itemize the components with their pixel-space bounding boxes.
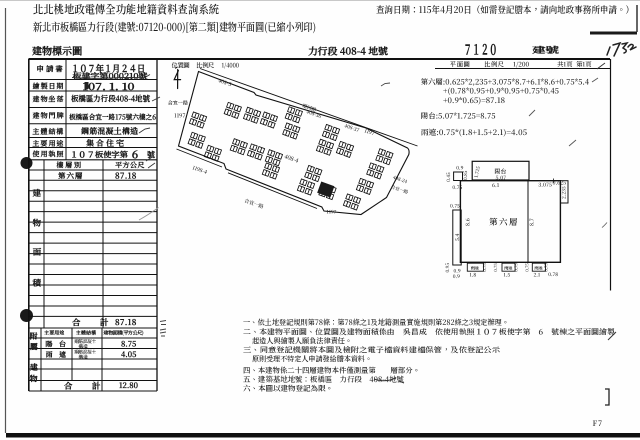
- svg-text:陽台:5.07*1.725=8.75: 陽台:5.07*1.725=8.75: [421, 111, 496, 122]
- svg-text:屬: 屬: [29, 342, 38, 353]
- svg-text:主體結構: 主體結構: [76, 330, 97, 337]
- svg-text:1197: 1197: [174, 112, 185, 120]
- svg-text:8.7: 8.7: [529, 218, 536, 226]
- svg-text:0.95: 0.95: [445, 263, 451, 273]
- svg-text:６: ６: [130, 146, 140, 161]
- svg-text:4.05: 4.05: [121, 349, 137, 360]
- svg-text:位置圖: 位置圖: [172, 60, 191, 69]
- svg-text:北北桃地政電傳全功能地籍資料查詢系統: 北北桃地政電傳全功能地籍資料查詢系統: [33, 2, 219, 18]
- svg-text:8.75: 8.75: [121, 338, 137, 349]
- svg-text:F7: F7: [593, 418, 603, 429]
- svg-text:第六層: 第六層: [57, 170, 84, 181]
- svg-text:台: 台: [59, 340, 66, 350]
- svg-text:0.75: 0.75: [525, 263, 531, 272]
- svg-text:0.45: 0.45: [446, 172, 452, 182]
- svg-text:查詢日期：115年4月20日（如需登記謄本，請向地政事務所申: 查詢日期：115年4月20日（如需登記謄本，請向地政事務所申請。）: [376, 2, 634, 16]
- svg-text:主體結構: 主體結構: [33, 127, 65, 137]
- svg-text:遮: 遮: [59, 350, 67, 360]
- svg-text:5.07: 5.07: [496, 175, 507, 182]
- svg-text:107. 1. 10: 107. 1. 10: [83, 79, 136, 93]
- svg-text:構造: 構造: [78, 353, 89, 360]
- svg-text:0.85: 0.85: [463, 170, 469, 180]
- svg-text:計: 計: [99, 317, 109, 329]
- svg-text:原則受理不特定人申請發給謄本資料。: 原則受理不特定人申請發給謄本資料。: [252, 354, 372, 365]
- svg-text:1197: 1197: [327, 209, 337, 216]
- svg-text:力行段 408-4 地號: 力行段 408-4 地號: [308, 44, 389, 58]
- svg-text:雨: 雨: [46, 350, 54, 360]
- svg-text:六、本圖以建物登記為限。: 六、本圖以建物登記為限。: [243, 383, 333, 394]
- svg-text:建物面積(平方公尺): 建物面積(平方公尺): [103, 330, 144, 337]
- svg-text:主要用途: 主要用途: [33, 139, 65, 149]
- svg-text:積: 積: [32, 277, 42, 289]
- svg-text:建: 建: [29, 362, 39, 373]
- svg-text:新北市板橋區力行段(建號:07120-000)[第二類]建物: 新北市板橋區力行段(建號:07120-000)[第二類]建物平面圖(已縮小列印): [33, 19, 316, 35]
- svg-text:附: 附: [30, 331, 39, 342]
- svg-text:0.75: 0.75: [452, 184, 462, 191]
- svg-text:合宜一路: 合宜一路: [168, 99, 188, 106]
- svg-text:0.75: 0.75: [543, 263, 549, 272]
- svg-text:比例尺: 比例尺: [484, 60, 505, 69]
- svg-text:0.75: 0.75: [482, 263, 488, 272]
- svg-text:平面圖: 平面圖: [449, 60, 471, 69]
- svg-text:第六層: 第六層: [489, 216, 519, 228]
- svg-text:87.18: 87.18: [115, 170, 137, 181]
- svg-text:建號: 建號: [530, 44, 559, 56]
- svg-text:0.625: 0.625: [553, 180, 567, 187]
- svg-text:平方公尺: 平方公尺: [115, 160, 145, 170]
- svg-text:建物坐落: 建物坐落: [33, 95, 65, 105]
- svg-text:87.18: 87.18: [115, 317, 137, 328]
- svg-text:合: 合: [63, 380, 73, 392]
- svg-text:申請書: 申請書: [37, 64, 66, 75]
- svg-text:0.75: 0.75: [493, 263, 499, 272]
- svg-text:建: 建: [32, 187, 42, 199]
- svg-text:計: 計: [91, 380, 101, 392]
- svg-text:2.1: 2.1: [534, 272, 541, 279]
- svg-text:７１２０: ７１２０: [464, 39, 498, 59]
- svg-text:共1頁: 共1頁: [557, 60, 573, 69]
- svg-text:比例尺: 比例尺: [196, 60, 215, 69]
- svg-text:+0.9*0.65)=87.18: +0.9*0.65)=87.18: [443, 95, 505, 106]
- svg-text:建物門牌: 建物門牌: [33, 111, 65, 121]
- svg-text:面: 面: [33, 246, 42, 258]
- svg-text:使用執照: 使用執照: [32, 150, 65, 160]
- svg-text:0.9: 0.9: [453, 273, 460, 280]
- svg-text:雨遮:0.75*(1.8+1.5+2.1)=4.05: 雨遮:0.75*(1.8+1.5+2.1)=4.05: [421, 127, 528, 138]
- svg-text:1/200: 1/200: [513, 60, 530, 69]
- svg-text:板橋區力行段408-4地號: 板橋區力行段408-4地號: [70, 94, 151, 105]
- svg-text:1.8: 1.8: [470, 272, 477, 279]
- svg-text:1.5: 1.5: [504, 272, 511, 279]
- svg-text:鋼筋混凝土構造: 鋼筋混凝土構造: [80, 126, 138, 137]
- svg-text:5.4: 5.4: [454, 233, 461, 241]
- svg-text:6.1: 6.1: [492, 182, 500, 189]
- svg-text:集合住宅: 集合住宅: [86, 138, 126, 149]
- svg-text:繪製日期: 繪製日期: [32, 82, 65, 92]
- svg-text:3.075: 3.075: [538, 182, 552, 189]
- svg-text:樓 層 別: 樓 層 別: [56, 160, 83, 170]
- svg-text:建物標示圖: 建物標示圖: [31, 43, 82, 58]
- svg-text:雨遮: 雨遮: [504, 265, 513, 271]
- svg-text:物: 物: [33, 217, 42, 229]
- svg-text:2.235: 2.235: [561, 186, 568, 199]
- svg-text:1/4000: 1/4000: [222, 60, 240, 69]
- svg-text:主要用途: 主要用途: [44, 330, 65, 337]
- svg-text:12.80: 12.80: [119, 380, 139, 391]
- svg-text:0.75: 0.75: [450, 203, 460, 210]
- svg-text:號: 號: [147, 150, 156, 161]
- svg-text:陽: 陽: [46, 340, 53, 350]
- svg-text:物: 物: [29, 374, 38, 385]
- svg-text:第1頁: 第1頁: [576, 60, 592, 69]
- svg-text:板橋區合宜一路175號六樓之6: 板橋區合宜一路175號六樓之6: [68, 113, 156, 123]
- svg-text:１０７板使字第: １０７板使字第: [70, 150, 128, 161]
- svg-text:0.78: 0.78: [548, 271, 558, 278]
- svg-text:雨遮: 雨遮: [534, 265, 543, 271]
- svg-text:雨遮: 雨遮: [471, 265, 480, 271]
- svg-text:0.75: 0.75: [514, 263, 520, 272]
- svg-text:8.6: 8.6: [465, 218, 472, 226]
- svg-text:合: 合: [71, 317, 81, 329]
